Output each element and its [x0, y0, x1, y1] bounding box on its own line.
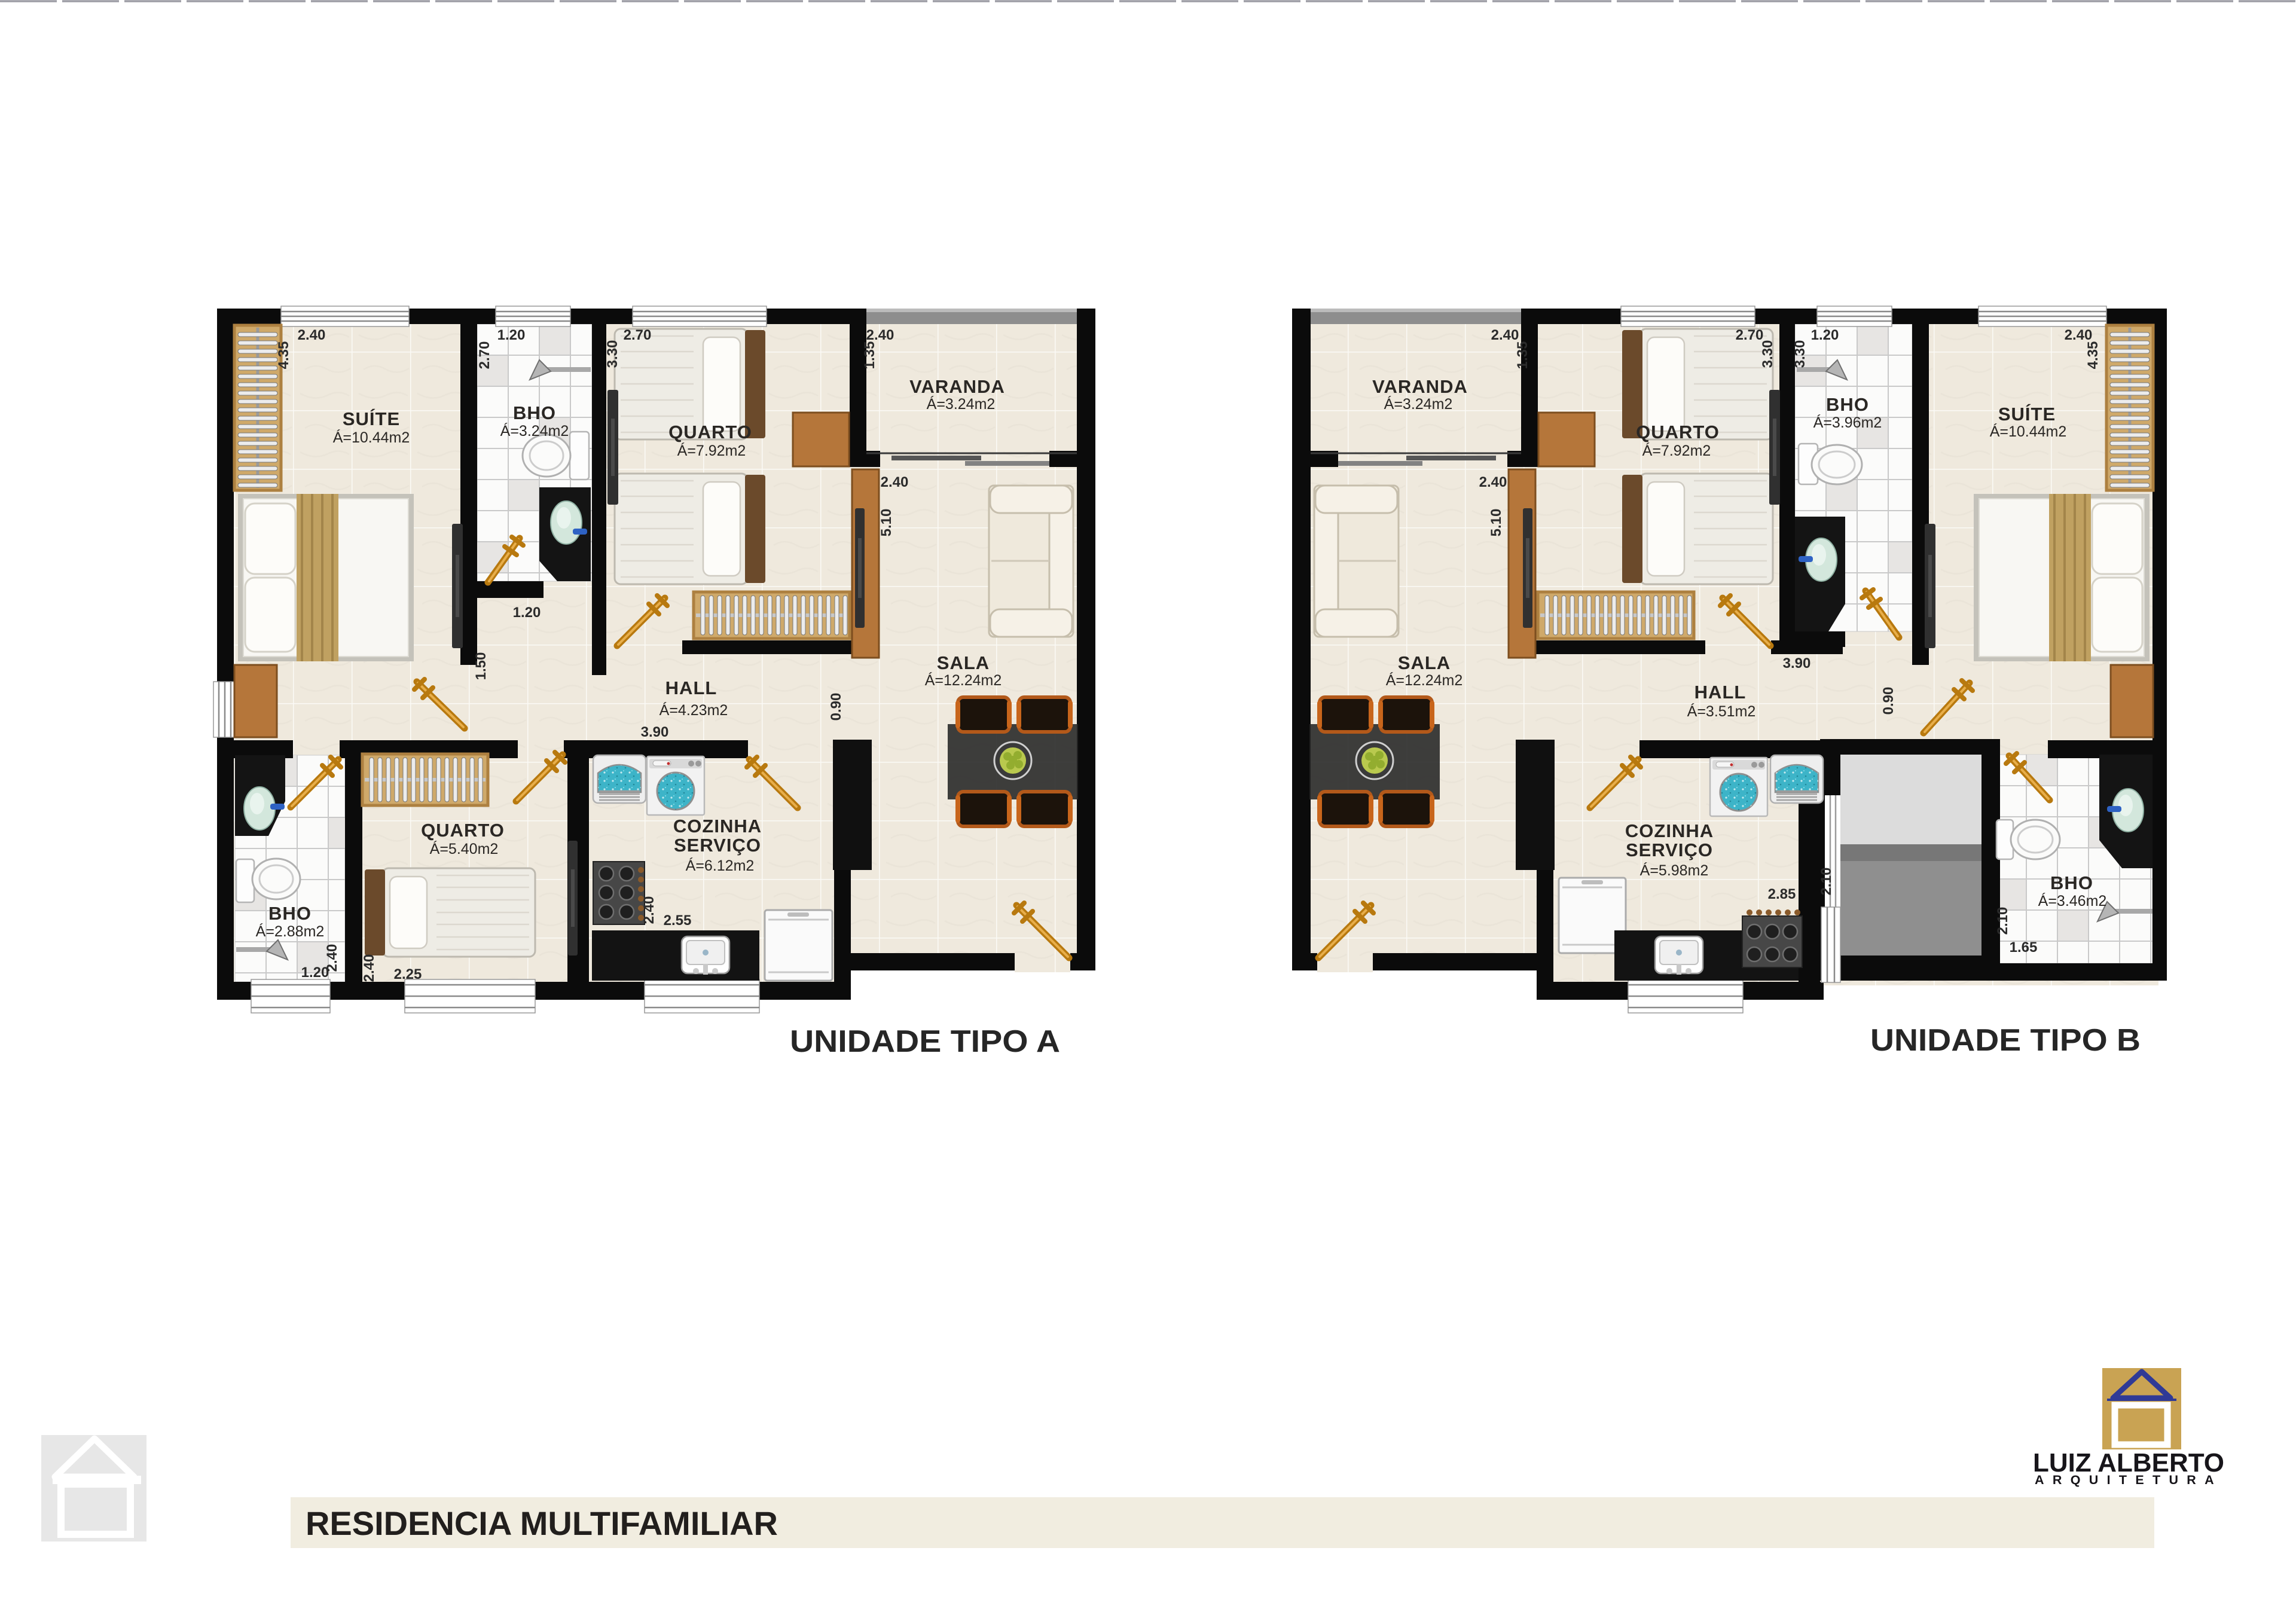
svg-text:4.35: 4.35 — [276, 341, 292, 370]
svg-text:VARANDA: VARANDA — [909, 376, 1005, 397]
svg-text:2.10: 2.10 — [1995, 907, 2011, 935]
svg-text:2.40: 2.40 — [881, 474, 909, 490]
svg-text:BHO: BHO — [513, 402, 556, 423]
svg-text:Á=3.24m2: Á=3.24m2 — [1384, 395, 1453, 413]
svg-text:Á=4.23m2: Á=4.23m2 — [660, 701, 728, 719]
svg-text:COZINHA: COZINHA — [673, 816, 762, 837]
svg-text:2.40: 2.40 — [641, 896, 657, 924]
svg-text:BHO: BHO — [1826, 394, 1869, 415]
svg-text:5.10: 5.10 — [878, 509, 894, 537]
svg-text:2.85: 2.85 — [1768, 886, 1796, 902]
svg-text:2.25: 2.25 — [394, 966, 422, 982]
svg-text:3.30: 3.30 — [1792, 340, 1808, 368]
svg-text:1.35: 1.35 — [862, 341, 878, 370]
svg-text:VARANDA: VARANDA — [1372, 376, 1468, 397]
svg-text:ARQUITETURA: ARQUITETURA — [2035, 1473, 2222, 1487]
svg-text:COZINHA: COZINHA — [1625, 820, 1714, 841]
svg-text:SUÍTE: SUÍTE — [1998, 404, 2056, 425]
svg-text:2.70: 2.70 — [624, 327, 652, 343]
svg-text:Á=12.24m2: Á=12.24m2 — [925, 671, 1002, 689]
svg-text:SALA: SALA — [937, 652, 990, 673]
svg-text:BHO: BHO — [2050, 872, 2093, 893]
svg-text:HALL: HALL — [1694, 682, 1747, 703]
svg-text:1.20: 1.20 — [1811, 327, 1839, 343]
svg-text:QUARTO: QUARTO — [421, 820, 505, 841]
svg-text:SALA: SALA — [1398, 652, 1451, 673]
svg-text:3.30: 3.30 — [604, 340, 621, 368]
svg-text:UNIDADE TIPO A: UNIDADE TIPO A — [790, 1024, 1060, 1059]
svg-text:2.70: 2.70 — [477, 341, 493, 370]
svg-text:1.35: 1.35 — [1515, 341, 1531, 370]
svg-text:HALL: HALL — [665, 677, 717, 698]
svg-text:Á=5.98m2: Á=5.98m2 — [1640, 862, 1709, 879]
svg-text:2.40: 2.40 — [1491, 327, 1519, 343]
svg-text:2.40: 2.40 — [866, 327, 894, 343]
svg-text:3.90: 3.90 — [1783, 655, 1811, 671]
svg-text:3.90: 3.90 — [641, 724, 669, 740]
svg-text:0.90: 0.90 — [1880, 687, 1897, 715]
svg-text:QUARTO: QUARTO — [668, 422, 752, 442]
svg-text:QUARTO: QUARTO — [1636, 422, 1720, 442]
svg-text:3.30: 3.30 — [1760, 340, 1776, 368]
svg-text:5.10: 5.10 — [1488, 509, 1504, 537]
svg-text:SUÍTE: SUÍTE — [343, 408, 400, 429]
svg-text:2.10: 2.10 — [1818, 868, 1834, 896]
svg-text:2.55: 2.55 — [664, 912, 692, 929]
svg-text:2.40: 2.40 — [298, 327, 326, 343]
svg-text:2.40: 2.40 — [361, 954, 377, 982]
svg-text:Á=3.51m2: Á=3.51m2 — [1687, 703, 1756, 720]
svg-text:Á=7.92m2: Á=7.92m2 — [1642, 442, 1711, 459]
svg-text:Á=3.46m2: Á=3.46m2 — [2038, 892, 2107, 909]
svg-text:1.65: 1.65 — [2010, 939, 2038, 956]
svg-text:Á=10.44m2: Á=10.44m2 — [1990, 423, 2067, 440]
svg-text:Á=5.40m2: Á=5.40m2 — [430, 840, 499, 857]
svg-text:SERVIÇO: SERVIÇO — [1626, 840, 1713, 860]
svg-text:2.40: 2.40 — [324, 944, 340, 972]
svg-text:Á=2.88m2: Á=2.88m2 — [256, 923, 325, 940]
svg-text:4.35: 4.35 — [2085, 341, 2101, 370]
svg-text:2.40: 2.40 — [2065, 327, 2093, 343]
svg-text:1.20: 1.20 — [513, 605, 541, 621]
svg-text:Á=12.24m2: Á=12.24m2 — [1386, 671, 1463, 689]
svg-text:SERVIÇO: SERVIÇO — [674, 835, 761, 856]
svg-text:Á=3.24m2: Á=3.24m2 — [500, 422, 569, 439]
svg-text:2.40: 2.40 — [1479, 474, 1507, 490]
svg-text:Á=10.44m2: Á=10.44m2 — [333, 429, 410, 446]
svg-text:BHO: BHO — [268, 903, 312, 924]
svg-text:Á=3.24m2: Á=3.24m2 — [927, 395, 996, 413]
svg-text:Á=6.12m2: Á=6.12m2 — [686, 857, 755, 874]
svg-text:1.20: 1.20 — [497, 327, 526, 343]
svg-text:RESIDENCIA MULTIFAMILIAR: RESIDENCIA MULTIFAMILIAR — [306, 1504, 778, 1542]
svg-text:1.50: 1.50 — [473, 652, 489, 680]
svg-text:UNIDADE TIPO B: UNIDADE TIPO B — [1870, 1023, 2141, 1058]
svg-text:Á=7.92m2: Á=7.92m2 — [677, 442, 746, 459]
svg-text:Á=3.96m2: Á=3.96m2 — [1813, 414, 1882, 431]
svg-text:0.90: 0.90 — [828, 693, 844, 721]
